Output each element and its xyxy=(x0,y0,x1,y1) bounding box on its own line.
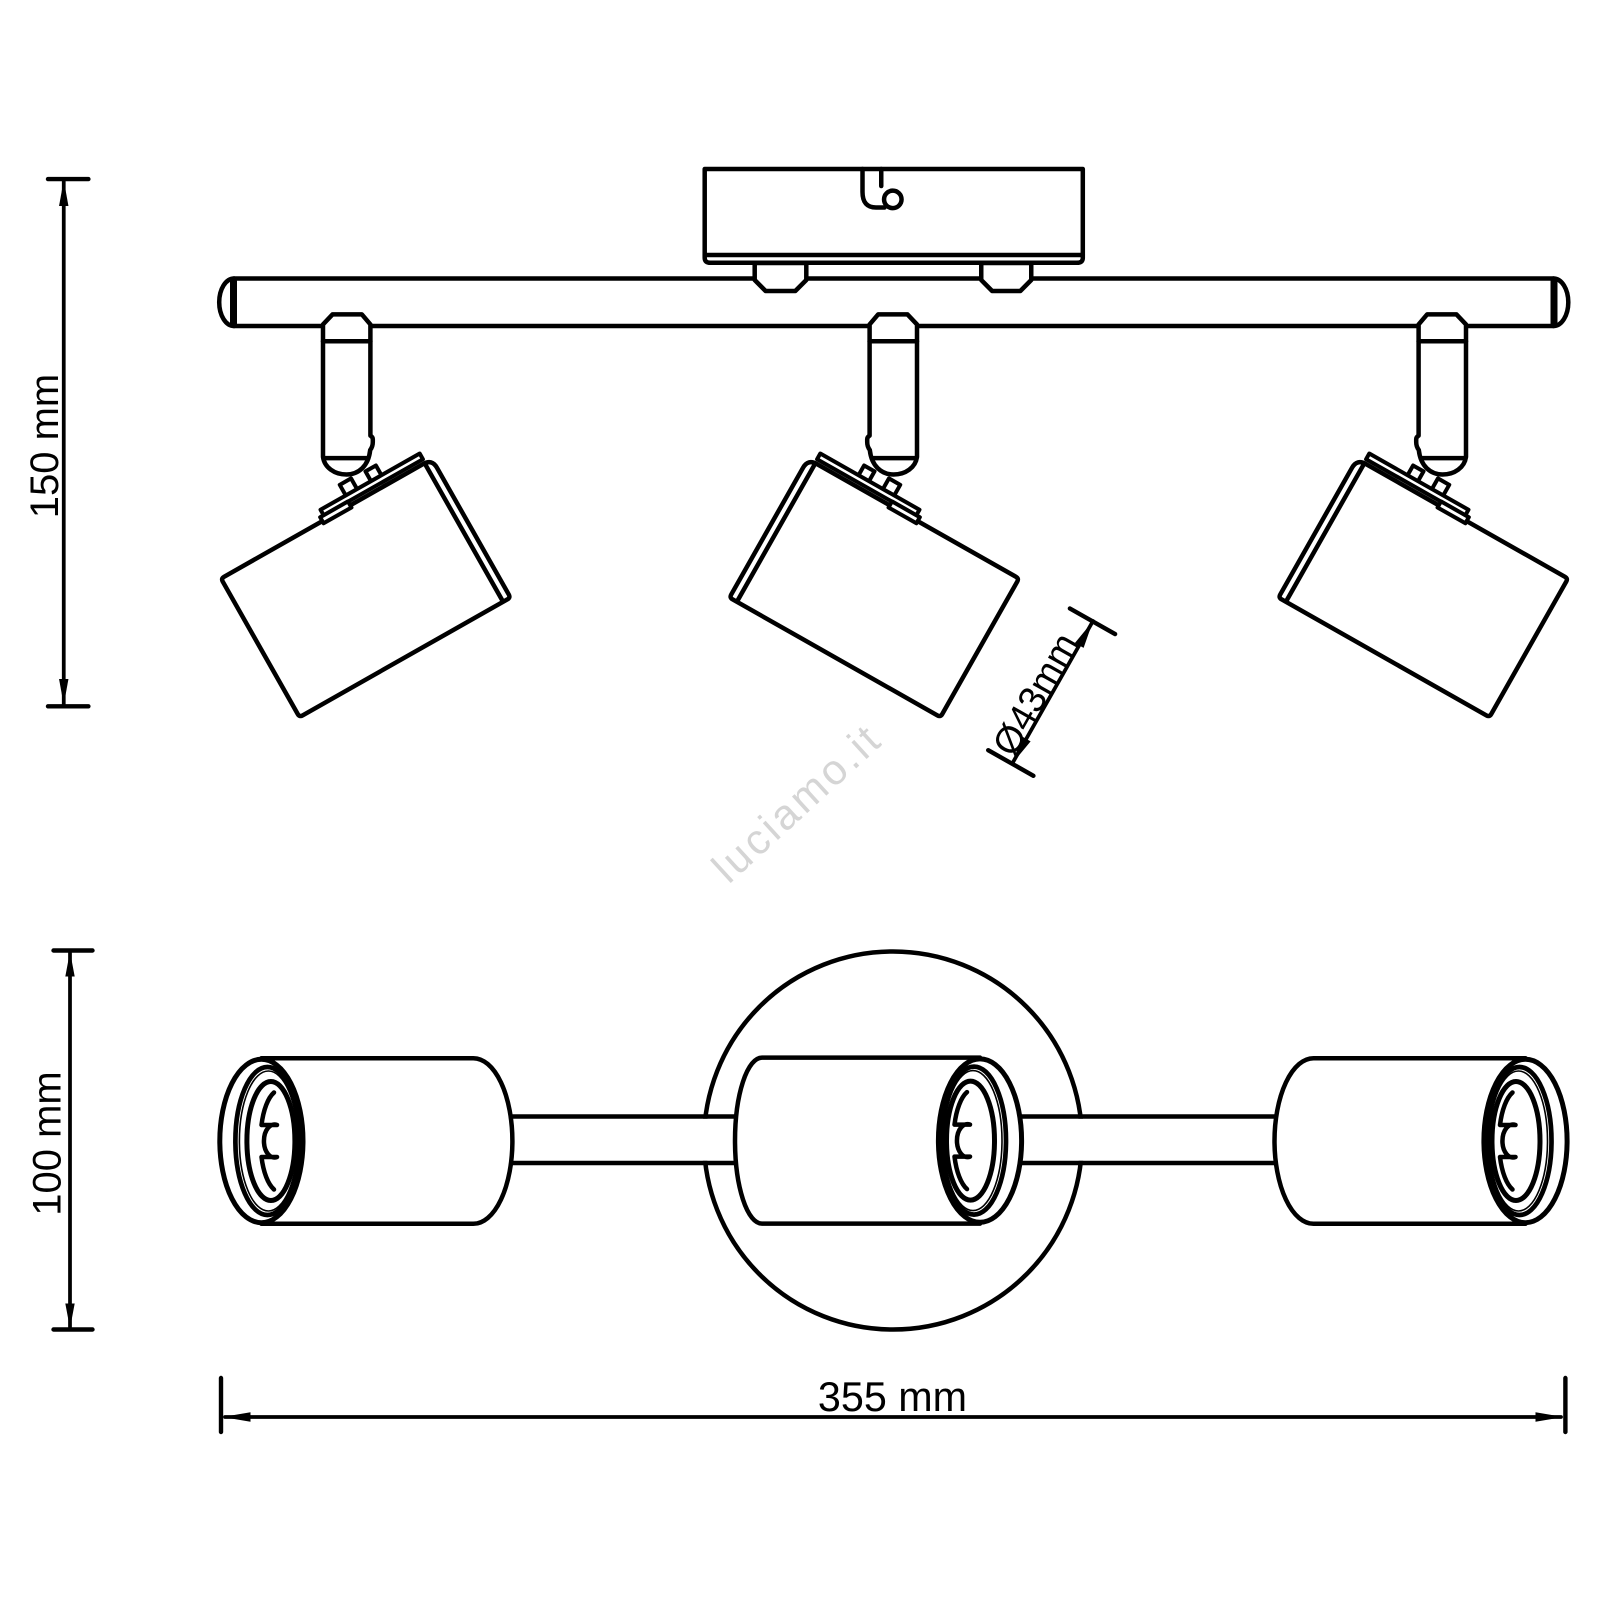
svg-text:100 mm: 100 mm xyxy=(26,1071,70,1216)
svg-text:355 mm: 355 mm xyxy=(818,1374,967,1420)
svg-text:150 mm: 150 mm xyxy=(23,374,67,519)
svg-text:luciamo.it: luciamo.it xyxy=(704,715,892,892)
svg-text:Ø43mm: Ø43mm xyxy=(984,626,1086,763)
